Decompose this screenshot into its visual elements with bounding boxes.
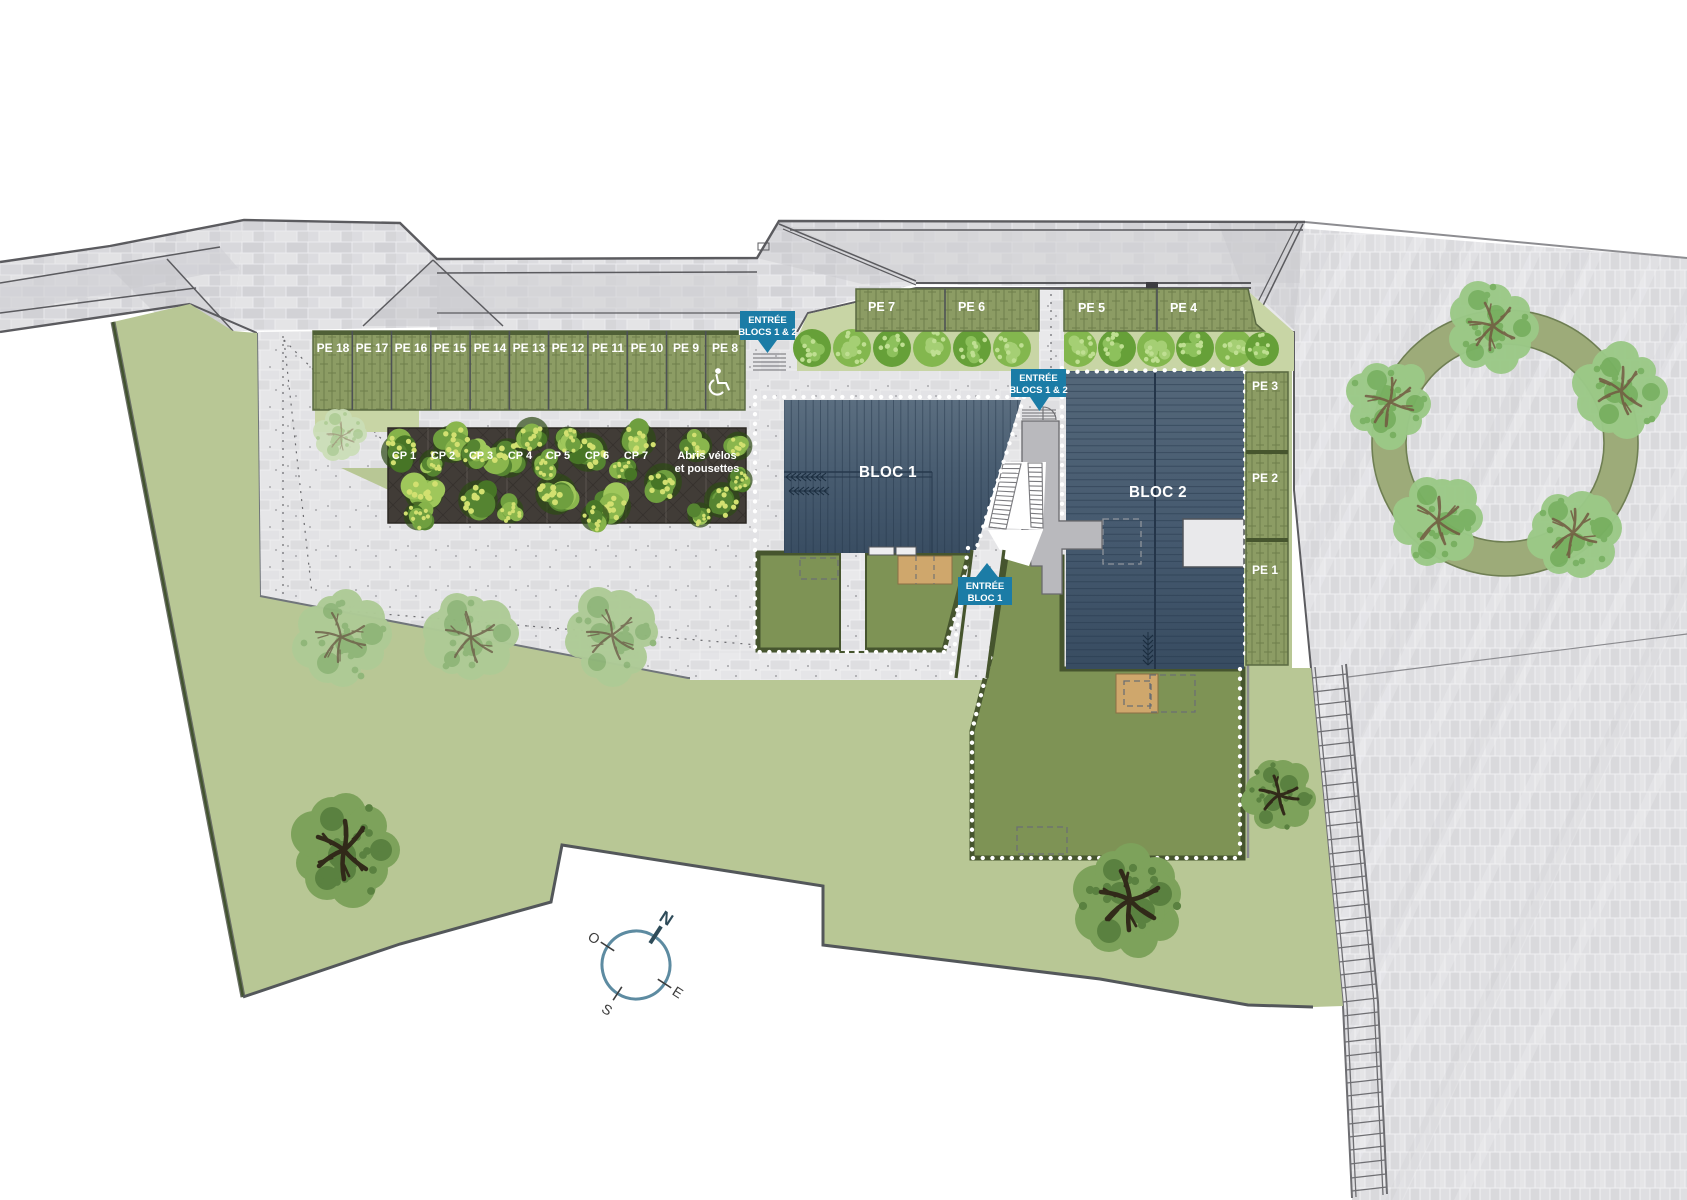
svg-text:PE 15: PE 15	[434, 341, 467, 355]
svg-text:PE 12: PE 12	[552, 341, 585, 355]
svg-text:CP 6: CP 6	[585, 450, 609, 462]
svg-text:BLOC 1: BLOC 1	[859, 464, 917, 481]
svg-text:CP 4: CP 4	[508, 450, 533, 462]
svg-text:ENTRÉE: ENTRÉE	[966, 581, 1005, 592]
svg-text:PE 16: PE 16	[395, 341, 428, 355]
svg-text:PE 6: PE 6	[958, 300, 985, 314]
svg-text:PE 1: PE 1	[1252, 563, 1278, 577]
svg-text:PE 8: PE 8	[712, 341, 738, 355]
svg-text:PE 11: PE 11	[592, 341, 624, 355]
svg-text:PE 17: PE 17	[356, 341, 389, 355]
svg-text:ENTRÉE: ENTRÉE	[1019, 373, 1058, 384]
svg-text:PE 3: PE 3	[1252, 379, 1278, 393]
svg-text:PE 10: PE 10	[631, 341, 664, 355]
svg-text:PE 7: PE 7	[868, 300, 895, 314]
svg-text:PE 2: PE 2	[1252, 471, 1278, 485]
svg-text:CP 5: CP 5	[546, 450, 570, 462]
svg-text:BLOCS 1 & 2: BLOCS 1 & 2	[738, 327, 797, 338]
svg-text:ENTRÉE: ENTRÉE	[748, 315, 787, 326]
svg-text:PE 18: PE 18	[317, 341, 350, 355]
svg-text:et pousettes: et pousettes	[675, 463, 740, 475]
svg-text:PE 13: PE 13	[513, 341, 546, 355]
svg-text:PE 14: PE 14	[474, 341, 507, 355]
svg-text:PE 9: PE 9	[673, 341, 699, 355]
svg-text:BLOC 1: BLOC 1	[968, 593, 1004, 604]
svg-text:BLOC 2: BLOC 2	[1129, 484, 1187, 501]
svg-text:BLOCS 1 & 2: BLOCS 1 & 2	[1009, 385, 1068, 396]
svg-text:CP 2: CP 2	[431, 450, 455, 462]
svg-text:Abris vélos: Abris vélos	[677, 450, 736, 462]
svg-text:CP 7: CP 7	[624, 450, 648, 462]
svg-text:CP 1: CP 1	[392, 450, 416, 462]
svg-text:CP 3: CP 3	[469, 450, 493, 462]
svg-text:PE 5: PE 5	[1078, 301, 1105, 315]
svg-text:PE 4: PE 4	[1170, 301, 1197, 315]
